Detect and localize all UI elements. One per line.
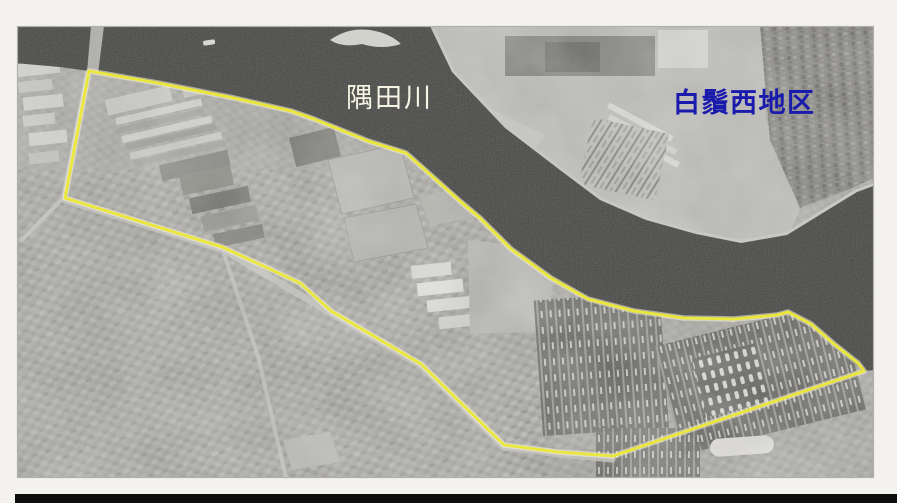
aerial-photo-screenshot: 隅田川 白鬚西地区	[0, 0, 897, 503]
river-label: 隅田川	[346, 83, 433, 113]
district-label: 白鬚西地区	[673, 87, 816, 118]
aerial-photo: 隅田川 白鬚西地区	[14, 26, 876, 478]
bottom-scan-bar	[15, 494, 897, 503]
